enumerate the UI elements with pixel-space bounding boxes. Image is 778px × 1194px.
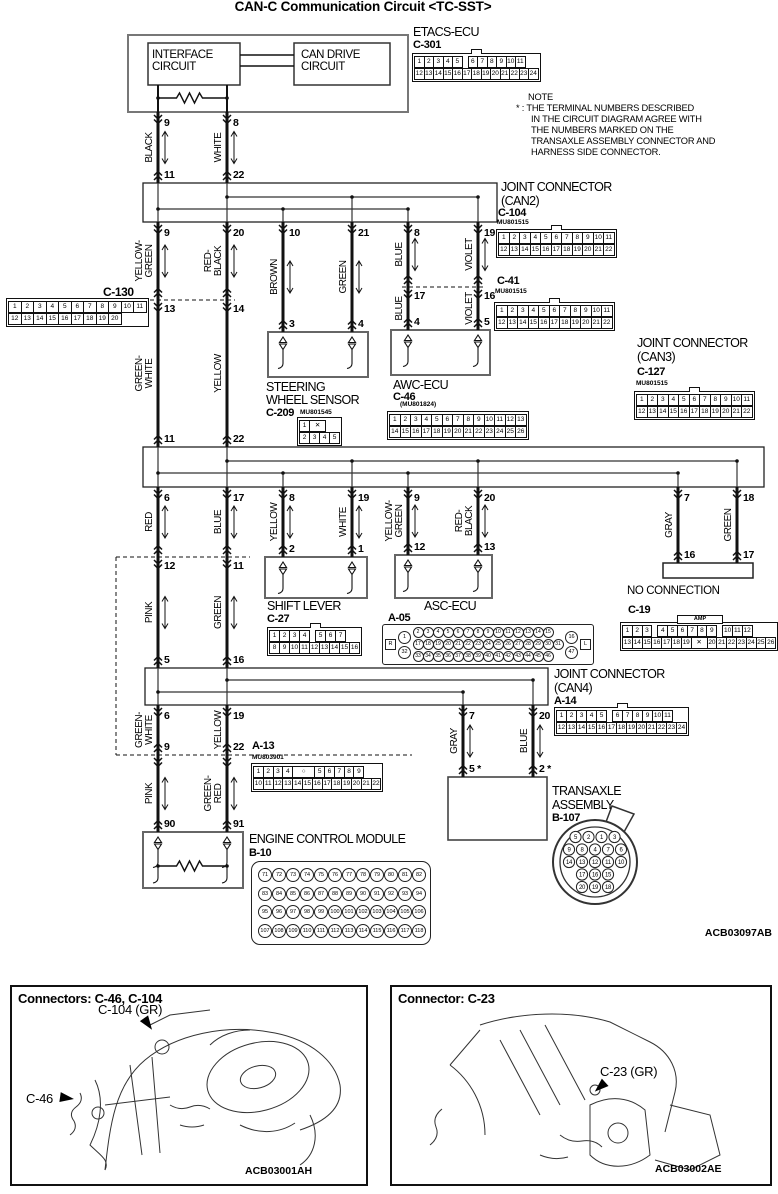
connector-pin: 36 [443,651,454,662]
shift-code: C-27 [267,614,289,626]
ecm-code: B-10 [249,848,271,860]
connector-pin: 23 [473,639,484,650]
note-line: HARNESS SIDE CONNECTOR. [531,148,661,158]
connector-pin: 108 [272,924,286,938]
connector-pin: 4 [433,627,444,638]
connector-pin: 37 [453,651,464,662]
connector-pin: 107 [258,924,272,938]
panel-right-title: Connector: C-23 [398,991,495,1006]
connector-pin: 44 [523,651,534,662]
connector-pin: 19 [96,313,110,325]
transaxle-label-2: ASSEMBLY [552,799,614,812]
callout-c46: C-46 [26,1091,53,1106]
connector-pin: 110 [300,924,314,938]
connector-pin: 75 [314,868,328,882]
diagram-reference-code: ACB03097AB [632,928,772,939]
connector-c127-pinout: 12345678910111213141516171819202122 [634,391,755,420]
connector-pin: 98 [300,905,314,919]
connector-pin: 11 [662,710,673,722]
connector-pin: 88 [328,887,342,901]
connector-pin: 27 [513,639,524,650]
connector-pin: 7 [335,630,346,642]
connector-pin: 22 [601,317,613,329]
connector-pin: 96 [272,905,286,919]
callout-c23: C-23 (GR) [600,1064,657,1079]
connector-b10-pinout: 7172737475767778798081828384858687888990… [251,861,431,945]
connector-pin: 10 [493,627,504,638]
connector-pin: 85 [286,887,300,901]
can3-code: C-127 [637,367,665,379]
connector-pin: 8 [473,627,484,638]
can2-code: C-104 [498,208,526,220]
connector-c301-pinout: 123456789101112131415161718192021222324 [412,53,541,82]
connector-pin: 105 [398,905,412,919]
connector-pin: 42 [503,651,514,662]
connector-pin: 18 [83,313,97,325]
connector-pin: 11 [601,305,613,317]
connector-pin: 84 [272,887,286,901]
connector-pin: 72 [272,868,286,882]
connector-pin: 3 [423,627,434,638]
connector-pin: 34 [423,651,434,662]
connector-pin: 90 [356,887,370,901]
can4-label-2: (CAN4) [554,682,592,695]
connector-tab [551,225,562,230]
connector-pin: 11 [503,627,514,638]
callout-arrow-c46 [59,1092,74,1104]
connector-pin: 12 [513,627,524,638]
connector-pin: 11 [603,232,615,244]
connector-c46-pinout: 1234567891011121314151617181920212223242… [387,411,529,440]
connector-pin: 9 [706,625,717,637]
connector-pin: 100 [328,905,342,919]
connector-pin: 91 [370,887,384,901]
c130-code: C-130 [103,286,134,299]
connector-pin: 113 [342,924,356,938]
connector-pin: 86 [300,887,314,901]
connector-pin: 38 [463,651,474,662]
connector-pin: 10 [121,301,135,313]
connector-pin: 81 [398,868,412,882]
connector-pin: 4 [299,630,310,642]
connector-pin: 22 [463,639,474,650]
connector-tab [617,703,628,708]
can3-part-number: MU801515 [636,381,668,388]
steering-part-number: MU801545 [300,410,332,417]
connector-pin: ○ [292,766,315,778]
connector-pin: 21 [453,639,464,650]
connector-pin: 117 [398,924,412,938]
connector-pin: 25 [493,639,504,650]
connector-pin: 24 [483,639,494,650]
etacs-ecu-label: ETACS-ECU [413,26,479,39]
connector-pin: 31 [553,639,564,650]
connector-pin: 92 [384,887,398,901]
connector-pin: 16 [58,313,72,325]
connector-pin: 89 [342,887,356,901]
connector-pin: 11 [133,301,147,313]
connector-pin: 20 [443,639,454,650]
connector-pin: ✕ [309,420,326,432]
connector-pin: 41 [493,651,504,662]
connector-pin: 26 [765,637,776,649]
asc-ecu-label: ASC-ECU [424,600,476,613]
connector-pin: 116 [384,924,398,938]
connector-tab [689,387,700,392]
connector-pin: 118 [412,924,426,938]
callout-c104: C-104 (GR) [98,1002,162,1017]
connector-pin: 28 [523,639,534,650]
connector-pin: 29 [533,639,544,650]
transaxle-label-1: TRANSAXLE [552,785,621,798]
note-heading: NOTE [528,93,553,103]
connector-pin: 14 [33,313,47,325]
connector-pin: 40 [483,651,494,662]
connector-pin: 101 [342,905,356,919]
can2-label-1: JOINT CONNECTOR [501,181,612,194]
connector-pin: 16 [349,642,360,654]
connector-pin: 77 [342,868,356,882]
connector-pin: 1 [398,631,411,644]
connector-pin: 1 [8,301,22,313]
connector-pin: 12 [8,313,22,325]
can3-label-2: (CAN3) [637,351,675,364]
connector-pin: 19 [433,639,444,650]
connector-pin: 104 [384,905,398,919]
connector-pin: 13 [523,627,534,638]
connector-pin: 13 [21,313,35,325]
connector-c209-pinout: 1✕2345 [297,417,342,446]
c19-code: C-19 [628,605,650,617]
connector-pin: 22 [741,406,753,418]
wiring-diagram-page: 911BLACK822WHITE913YELLOW-GREEN2014RED-B… [0,0,778,1194]
a13-code: A-13 [252,741,274,753]
connector-pin: 9 [108,301,122,313]
connector-pin: 102 [356,905,370,919]
can3-label-1: JOINT CONNECTOR [637,337,748,350]
asc-code: A-05 [388,613,410,625]
steering-code: C-209 [266,408,294,420]
connector-pin: 3 [33,301,47,313]
transaxle-code: B-107 [552,813,580,825]
connector-c19-pinout: AMP12345678910111213141516171819✕2021222… [620,622,778,651]
can2-part-number: MU801515 [497,220,529,227]
connector-pin: 33 [413,651,424,662]
c41-part-number: MU801515 [495,289,527,296]
connector-a05-pinout: R132234567891011121314151718192021222324… [382,624,594,665]
connector-pin: 2 [21,301,35,313]
no-connection-label: NO CONNECTION [627,585,720,597]
connector-pin: 94 [412,887,426,901]
connector-tab [471,49,482,54]
shift-lever-label: SHIFT LEVER [267,600,341,613]
connector-pin: 7 [83,301,97,313]
connector-pin: 114 [356,924,370,938]
connector-a13-pinout: 1234○5678910111213141516171819202122 [251,763,383,792]
steering-label-2: WHEEL SENSOR [266,394,359,407]
connector-pin: 15 [46,313,60,325]
connector-pin: 76 [328,868,342,882]
connector-pin: 7 [463,627,474,638]
connector-pin: 71 [258,868,272,882]
connector-pin: 2 [413,627,424,638]
connector-c104-pinout: 12345678910111213141516171819202122 [496,229,617,258]
connector-pin: 5 [443,627,454,638]
connector-pin: 15 [543,627,554,638]
connector-pin: 5 [452,56,463,68]
connector-pin: 32 [398,646,411,659]
connector-pin: 30 [543,639,554,650]
connector-pin: 47 [565,646,578,659]
connector-pin: 8 [96,301,110,313]
connector-pin: 9 [353,766,364,778]
connector-pin: 4 [46,301,60,313]
note-line: TRANSAXLE ASSEMBLY CONNECTOR AND [531,137,715,147]
connector-pin: 46 [543,651,554,662]
connector-pin: L [580,639,591,650]
connector-pin: ✕ [691,637,708,649]
can-drive-circuit-label: CAN DRIVE CIRCUIT [301,49,360,73]
connector-pin: 18 [423,639,434,650]
connector-pin: 103 [370,905,384,919]
connector-pin: 6 [453,627,464,638]
photo-code-right: ACB03002AE [655,1164,722,1175]
connector-pin: 11 [741,394,753,406]
connector-pin: 78 [356,868,370,882]
connector-pin: 24 [528,68,539,80]
connector-pin: 115 [370,924,384,938]
connector-pin: 109 [286,924,300,938]
connector-pin: 5 [329,432,340,444]
amp-badge: AMP [677,615,723,624]
connector-pin: 95 [258,905,272,919]
connector-tab [549,298,560,303]
connector-c27-pinout: 12345678910111213141516 [267,627,362,656]
connector-pin: 20 [108,313,122,325]
connector-pin: 45 [533,651,544,662]
note-line: IN THE CIRCUIT DIAGRAM AGREE WITH [531,115,702,125]
connector-pin: 87 [314,887,328,901]
connector-pin: 106 [412,905,426,919]
photo-code-left: ACB03001AH [245,1166,312,1177]
connector-a14-pinout: 123456789101112131415161718192021222324 [554,707,689,736]
connector-pin: 39 [473,651,484,662]
awc-part-number: (MU801824) [400,402,436,409]
connector-pin: 9 [483,627,494,638]
can4-code: A-14 [554,696,576,708]
connector-pin: 26 [515,426,527,438]
connector-pin: 16 [565,631,578,644]
connector-pin: 111 [314,924,328,938]
connector-pin: 80 [384,868,398,882]
connector-pin: 13 [515,414,527,426]
connector-pin: 79 [370,868,384,882]
connector-pin: 74 [300,868,314,882]
connector-pin: 11 [515,56,526,68]
can4-label-1: JOINT CONNECTOR [554,668,665,681]
connector-pin: 3 [642,625,653,637]
connector-pin: 17 [71,313,85,325]
interface-circuit-label: INTERFACE CIRCUIT [152,49,213,73]
connector-pin: 43 [513,651,524,662]
connector-pin: 6 [71,301,85,313]
connector-pin: 14 [533,627,544,638]
connector-pin: 12 [742,625,753,637]
connector-pin: 93 [398,887,412,901]
connector-c130-pinout: 1234567891011121314151617181920 [6,298,149,327]
connector-pin: 5 [58,301,72,313]
connector-pin: 112 [328,924,342,938]
note-line: THE NUMBERS MARKED ON THE [531,126,674,136]
connector-pin: 24 [676,722,687,734]
connector-pin: 83 [258,887,272,901]
etacs-connector-code: C-301 [413,40,441,52]
connector-pin: 35 [433,651,444,662]
connector-c41-pinout: 12345678910111213141516171819202122 [494,302,615,331]
connector-pin: 22 [603,244,615,256]
connector-pin: 22 [371,778,382,790]
c41-code: C-41 [497,276,519,288]
connector-pin: 17 [413,639,424,650]
connector-pin: 82 [412,868,426,882]
connector-tab [310,623,321,628]
connector-pin: 26 [503,639,514,650]
a13-part-number: MU803901 [252,755,284,762]
connector-pin: R [385,639,396,650]
ecm-label: ENGINE CONTROL MODULE [249,833,405,846]
connector-pin: 73 [286,868,300,882]
connector-pin: 97 [286,905,300,919]
connector-pin: 5 [596,710,607,722]
note-line: * : THE TERMINAL NUMBERS DESCRIBED [516,104,694,114]
connector-pin: 99 [314,905,328,919]
page-title: CAN-C Communication Circuit <TC-SST> [0,0,726,14]
